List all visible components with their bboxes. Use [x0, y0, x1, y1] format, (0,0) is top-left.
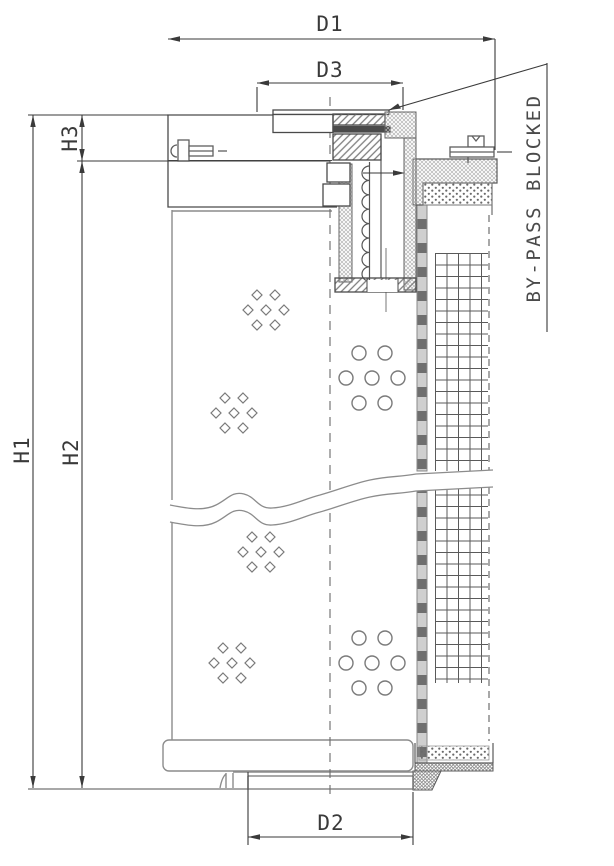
bypass-spring — [362, 162, 370, 282]
drawing-svg: D1 D3 D2 H1 H2 H3 BY-PASS BLOCKED — [0, 0, 614, 866]
bayonet-clip-left — [171, 140, 227, 161]
label-bypass-blocked: BY-PASS BLOCKED — [523, 93, 545, 302]
label-h2: H2 — [59, 438, 83, 465]
label-h1: H1 — [10, 436, 34, 463]
technical-drawing-filter-element: D1 D3 D2 H1 H2 H3 BY-PASS BLOCKED — [0, 0, 614, 866]
media-mesh-upper — [435, 253, 488, 471]
label-d1: D1 — [316, 12, 343, 36]
label-d2: D2 — [317, 811, 344, 835]
label-h3: H3 — [58, 124, 82, 151]
media-mesh-lower — [435, 487, 488, 683]
label-d3: D3 — [316, 58, 343, 82]
